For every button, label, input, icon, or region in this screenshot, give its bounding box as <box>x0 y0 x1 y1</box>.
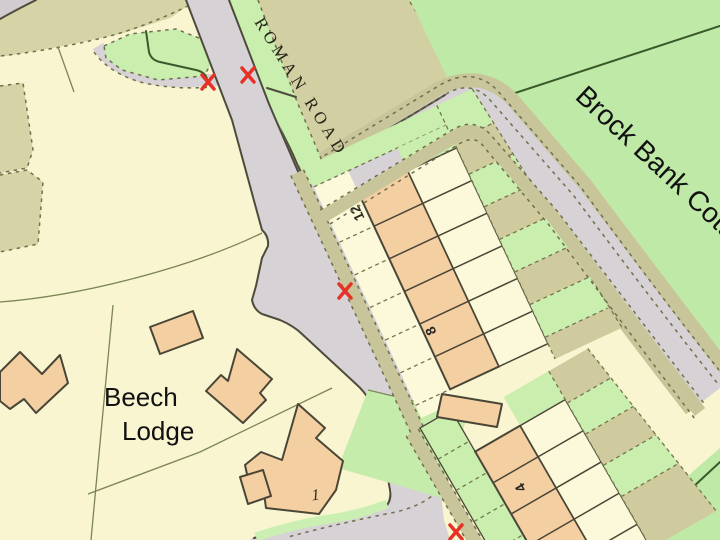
property-name-line1: Beech <box>104 382 178 412</box>
map-viewport[interactable]: 12 8 <box>0 0 720 540</box>
os-map-canvas[interactable]: 12 8 <box>0 0 720 540</box>
property-name-line2: Lodge <box>122 416 194 446</box>
